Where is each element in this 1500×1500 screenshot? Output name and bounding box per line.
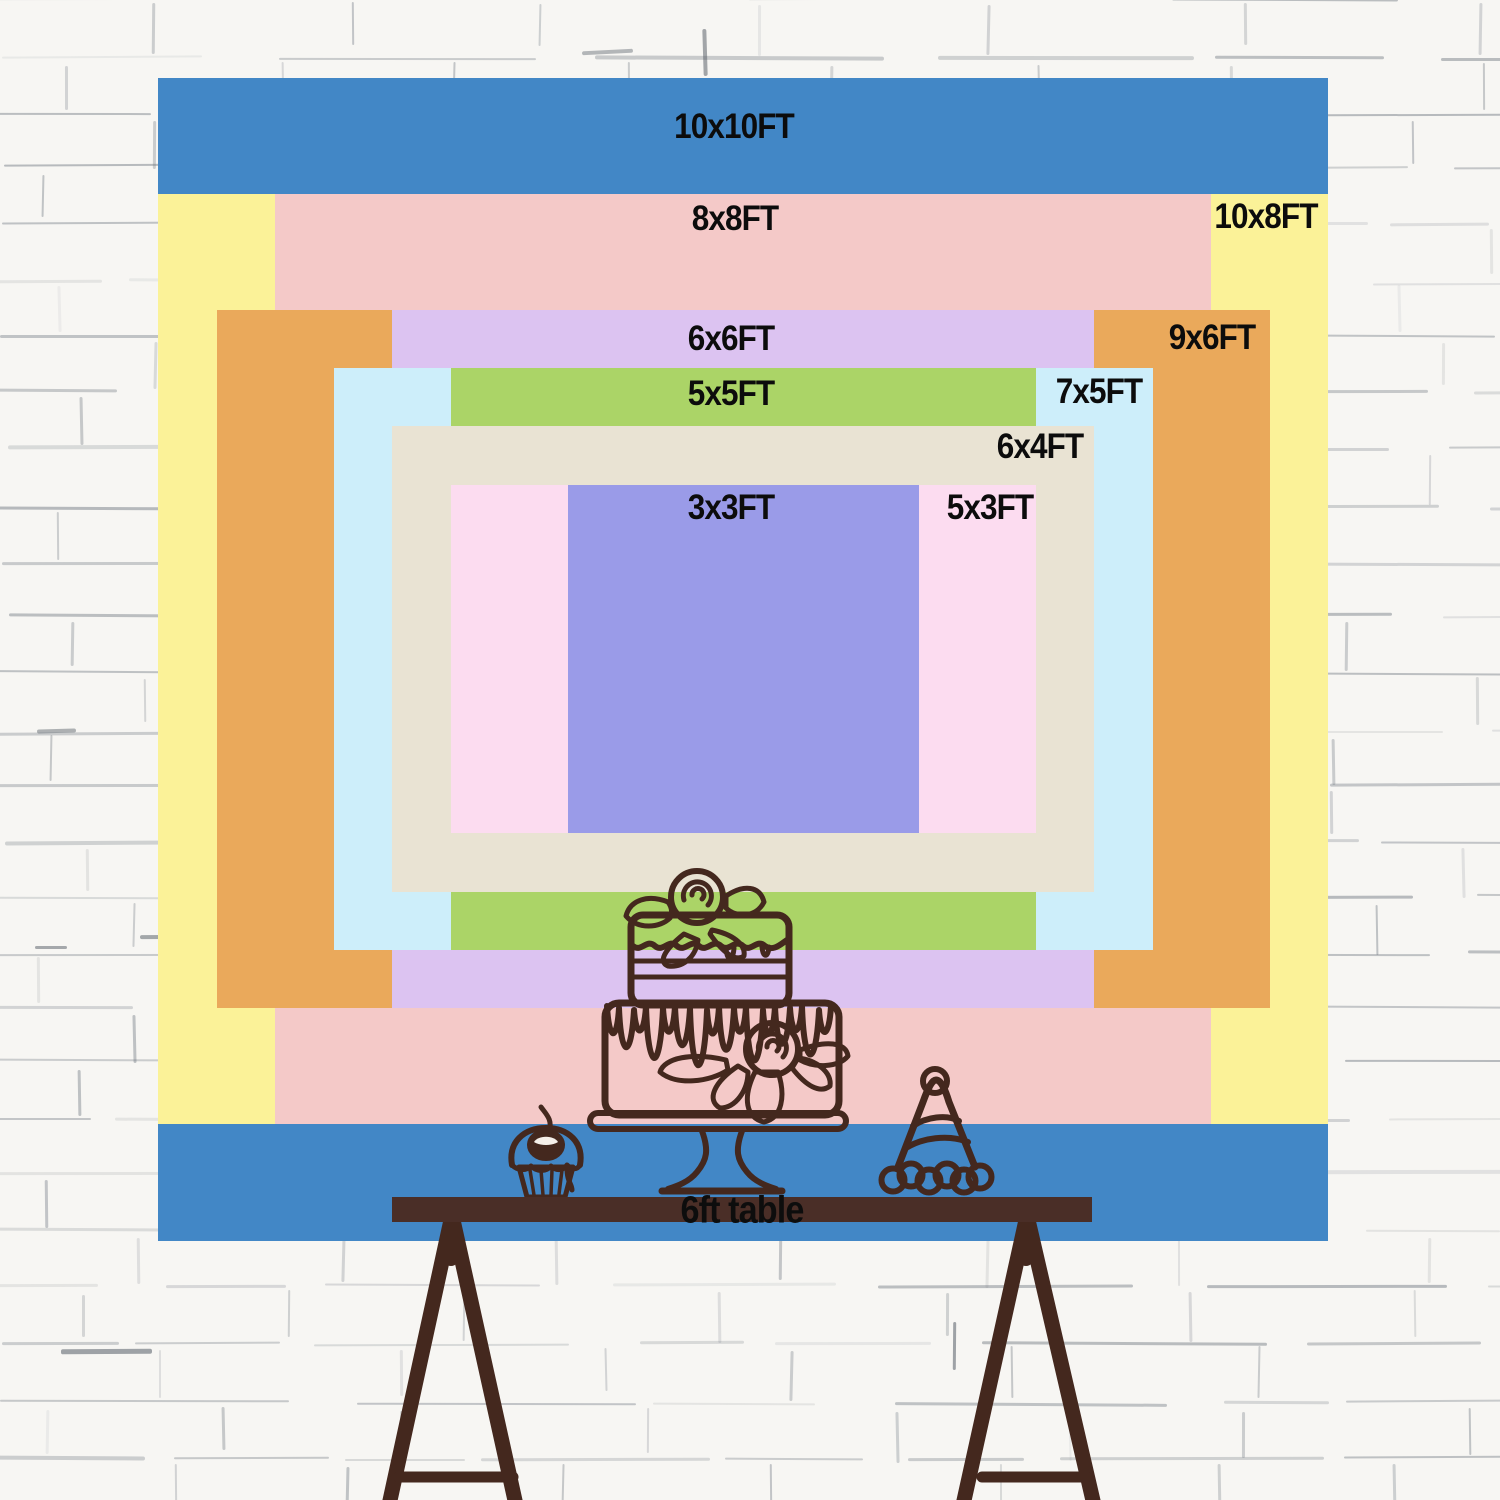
brick-joint-line (82, 1295, 85, 1337)
brick-mortar-line (2, 1342, 119, 1345)
size-chart-poster: 10x10FT10x8FT8x8FT9x6FT6x6FT7x5FT5x5FT6x… (0, 0, 1500, 1500)
brick-mortar-line (1443, 616, 1500, 619)
brick-mortar-line (982, 1341, 1267, 1346)
brick-joint-line (1469, 1408, 1472, 1455)
size-label-3x3: 3x3FT (688, 488, 775, 528)
brick-mortar-line (357, 1403, 636, 1406)
brick-joint-line (1428, 1238, 1432, 1283)
brick-joint-line (45, 1180, 48, 1228)
brick-mortar-line (1441, 58, 1500, 61)
brick-joint-line (985, 1238, 989, 1288)
brick-joint-line (152, 3, 155, 54)
brick-joint-line (1479, 3, 1483, 55)
brick-joint-line (1244, 3, 1247, 45)
brick-joint-line (986, 5, 991, 55)
brick-joint-line (1393, 1464, 1397, 1500)
brick-mortar-line (0, 1118, 91, 1120)
brick-joint-line (132, 903, 135, 947)
brick-joint-line (42, 175, 45, 217)
brick-mortar-line (1373, 283, 1500, 285)
brick-accent-line (702, 29, 707, 76)
brick-joint-line (352, 2, 354, 45)
brick-mortar-line (481, 1458, 710, 1461)
brick-joint-line (561, 1464, 564, 1500)
brick-mortar-line (1172, 0, 1398, 1)
brick-mortar-line (878, 1284, 1133, 1288)
brick-joint-line (50, 735, 53, 781)
brick-joint-line (463, 1289, 466, 1341)
brick-joint-line (78, 1070, 82, 1116)
brick-joint-line (1476, 677, 1479, 725)
brick-mortar-line (1224, 1401, 1329, 1404)
brick-mortar-line (0, 1400, 289, 1402)
brick-mortar-line (166, 1285, 286, 1288)
size-label-8x8: 8x8FT (692, 199, 779, 239)
brick-joint-line (1414, 1290, 1417, 1337)
brick-mortar-line (613, 1283, 836, 1287)
size-label-5x3: 5x3FT (947, 488, 1034, 528)
brick-joint-line (1242, 1412, 1245, 1458)
brick-joint-line (789, 1351, 793, 1401)
brick-joint-line (46, 1410, 50, 1454)
brick-mortar-line (1449, 445, 1500, 448)
brick-joint-line (222, 1407, 226, 1450)
brick-joint-line (57, 512, 60, 560)
brick-mortar-line (1474, 390, 1500, 394)
brick-mortar-line (895, 1402, 1167, 1407)
brick-mortar-line (0, 280, 102, 284)
brick-joint-line (1376, 905, 1379, 955)
brick-joint-line (555, 1235, 558, 1285)
brick-joint-line (1490, 229, 1494, 274)
brick-joint-line (718, 1292, 722, 1343)
brick-mortar-line (653, 1403, 815, 1405)
brick-joint-line (1461, 848, 1465, 898)
brick-mortar-line (0, 1228, 165, 1232)
brick-mortar-line (1381, 841, 1500, 844)
brick-joint-line (400, 1411, 403, 1454)
brick-joint-line (400, 1350, 403, 1396)
brick-mortar-line (0, 389, 117, 392)
size-label-6x4: 6x4FT (997, 427, 1084, 467)
brick-mortar-line (1215, 56, 1384, 60)
brick-mortar-line (1345, 1060, 1500, 1062)
brick-mortar-line (775, 1342, 931, 1345)
brick-mortar-line (1492, 730, 1500, 733)
brick-joint-line (770, 1464, 773, 1500)
brick-mortar-line (1390, 223, 1489, 227)
brick-accent-line (953, 1322, 956, 1370)
brick-mortar-line (1490, 506, 1500, 510)
brick-joint-line (159, 1350, 161, 1398)
brick-joint-line (1332, 739, 1335, 785)
brick-mortar-line (174, 1457, 329, 1459)
backdrop-rect-3x3 (568, 485, 919, 834)
size-label-9x6: 9x6FT (1169, 318, 1256, 358)
brick-joint-line (1257, 1346, 1260, 1398)
brick-joint-line (1397, 285, 1401, 332)
brick-joint-line (1442, 343, 1445, 385)
brick-joint-line (65, 66, 68, 110)
brick-mortar-line (314, 1344, 569, 1347)
brick-mortar-line (1060, 1457, 1324, 1460)
brick-joint-line (288, 1290, 291, 1337)
brick-mortar-line (1389, 1118, 1500, 1120)
brick-mortar-line (279, 58, 536, 60)
brick-mortar-line (345, 1459, 465, 1461)
brick-joint-line (1011, 1346, 1014, 1398)
brick-joint-line (1330, 791, 1334, 834)
brick-joint-line (1178, 1236, 1180, 1286)
brick-mortar-line (0, 1456, 145, 1460)
brick-joint-line (895, 1412, 899, 1463)
brick-joint-line (153, 342, 157, 389)
brick-joint-line (137, 1238, 140, 1284)
brick-joint-line (341, 1234, 345, 1282)
brick-mortar-line (908, 1458, 1024, 1461)
brick-accent-line (582, 49, 633, 56)
brick-joint-line (153, 121, 156, 169)
brick-joint-line (1429, 455, 1432, 505)
brick-joint-line (1345, 622, 1348, 671)
brick-joint-line (1483, 63, 1486, 110)
brick-joint-line (1068, 1412, 1072, 1461)
brick-joint-line (1218, 1464, 1222, 1500)
brick-joint-line (144, 679, 146, 722)
brick-mortar-line (2, 55, 202, 58)
brick-joint-line (647, 1408, 649, 1453)
brick-joint-line (539, 4, 542, 46)
brick-joint-line (79, 397, 83, 445)
brick-accent-line (61, 1349, 152, 1355)
brick-mortar-line (1305, 1170, 1500, 1174)
brick-mortar-line (1207, 1285, 1447, 1288)
brick-mortar-line (640, 1341, 744, 1345)
brick-joint-line (345, 1467, 349, 1500)
brick-mortar-line (595, 55, 884, 60)
brick-joint-line (132, 1015, 136, 1063)
size-label-6x6: 6x6FT (688, 319, 775, 359)
brick-mortar-line (0, 1006, 133, 1009)
brick-mortar-line (1477, 894, 1500, 897)
brick-joint-line (1000, 1464, 1002, 1500)
brick-mortar-line (1324, 731, 1443, 733)
size-label-5x5: 5x5FT (688, 374, 775, 414)
brick-mortar-line (1366, 1230, 1500, 1232)
size-label-10x10: 10x10FT (674, 107, 794, 147)
brick-mortar-line (725, 1458, 863, 1461)
brick-joint-line (37, 957, 41, 1003)
brick-mortar-line (1344, 1455, 1500, 1458)
brick-joint-line (175, 1464, 177, 1500)
brick-accent-line (35, 946, 67, 949)
brick-mortar-line (0, 1059, 168, 1061)
size-label-10x8: 10x8FT (1214, 197, 1317, 237)
brick-mortar-line (1307, 1341, 1481, 1345)
brick-mortar-line (1346, 1399, 1500, 1402)
brick-joint-line (1412, 121, 1415, 164)
table-length-label: 6ft table (680, 1190, 803, 1233)
brick-mortar-line (1330, 782, 1500, 786)
brick-joint-line (57, 286, 61, 332)
size-label-7x5: 7x5FT (1056, 372, 1143, 412)
brick-mortar-line (1468, 950, 1500, 954)
brick-mortar-line (0, 113, 151, 115)
brick-joint-line (71, 622, 74, 666)
brick-joint-line (1189, 1292, 1193, 1342)
brick-mortar-line (0, 1284, 98, 1287)
brick-mortar-line (1454, 167, 1500, 170)
brick-mortar-line (1488, 1285, 1500, 1288)
brick-joint-line (604, 1348, 607, 1391)
brick-mortar-line (325, 1283, 540, 1286)
brick-mortar-line (938, 56, 1194, 60)
brick-joint-line (946, 1293, 949, 1336)
brick-joint-line (86, 849, 89, 891)
brick-joint-line (758, 5, 761, 56)
brick-mortar-line (5, 841, 177, 845)
brick-mortar-line (135, 1342, 280, 1345)
